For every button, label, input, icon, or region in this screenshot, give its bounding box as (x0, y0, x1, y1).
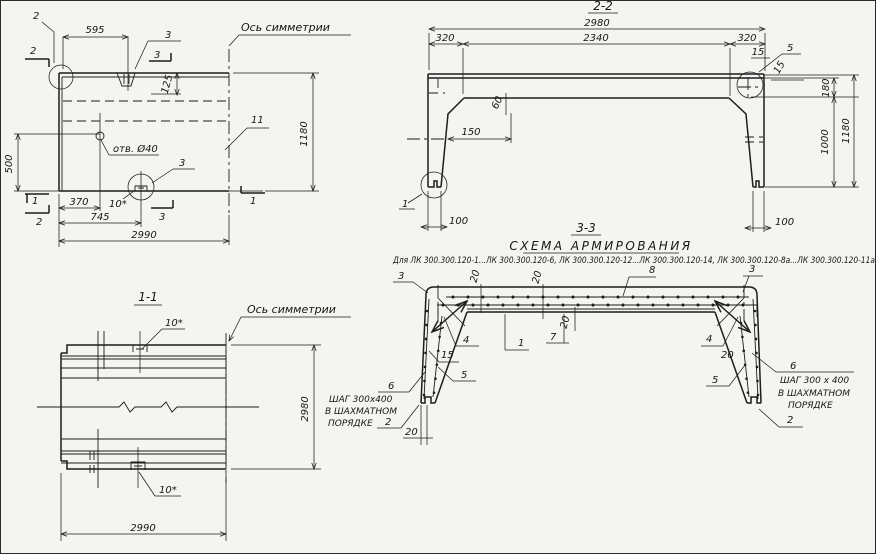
sec33-note-right-3: ПОРЯДКЕ (788, 401, 833, 411)
sec33-texts: 3-3 СХЕМА АРМИРОВАНИЯ Для ЛК 300.300.120… (325, 221, 875, 438)
sec33-pos-4-right: 4 (706, 334, 712, 345)
sec11-pos-10-bottom: 10* (159, 485, 177, 496)
plan-flag-1-left: 1 (32, 196, 38, 207)
sec33-pos-2-right: 2 (787, 415, 793, 426)
plan-label-3-top: 3 (165, 30, 171, 41)
sec22-dim-180: 180 (821, 78, 832, 97)
sec33-dim-20-b: 20 (531, 270, 545, 285)
plan-label-3-bottom: 3 (179, 158, 185, 169)
sec33-dim-20-c: 20 (559, 315, 573, 330)
sec22-dim-1180: 1180 (841, 118, 852, 143)
sec33-note-left-2: В ШАХМАТНОМ (325, 407, 397, 417)
sec33-pos-5-left: 5 (461, 370, 467, 381)
sec33-note-left-3: ПОРЯДКЕ (328, 419, 373, 429)
sec22-dimensions (421, 29, 859, 232)
sec22-dim-2980: 2980 (584, 18, 609, 29)
sec11-axis-label: Ось симметрии (247, 303, 336, 316)
sec33-heading: СХЕМА АРМИРОВАНИЯ (509, 239, 692, 253)
plan-dim-500: 500 (4, 154, 15, 173)
sec22-dim-1000: 1000 (820, 129, 831, 154)
sec33-note-right-2: В ШАХМАТНОМ (778, 389, 850, 399)
sec11-texts: 1-1 10* Ось симметрии 2980 10* 2990 (130, 290, 336, 534)
plan-hole-label: отв. Ø40 (113, 143, 158, 155)
sec11-dimensions (61, 345, 321, 541)
sec22-dim-100-left: 100 (449, 216, 468, 227)
sec33-pos-4-left: 4 (463, 335, 469, 346)
sec11-dim-2980: 2980 (300, 396, 311, 421)
sec22-dim-320-right: 320 (737, 33, 756, 44)
sec33-dim-20-a: 20 (469, 269, 483, 284)
sec33-pos-6-left: 6 (388, 381, 394, 392)
sec33-pos-15: 15 (441, 350, 454, 361)
plan-dim-2990: 2990 (131, 230, 156, 241)
sec22-dim-15-top: 15 (752, 47, 765, 58)
sec33-pos-8: 8 (649, 265, 655, 276)
plan-axis-label: Ось симметрии (241, 21, 330, 34)
drawing-sheet: 2 2 595 3 3 125 Ось симметрии 11 1180 от… (0, 0, 876, 554)
plan-dim-370: 370 (69, 197, 88, 208)
sec33-pos-6-right: 6 (790, 361, 796, 372)
sec11-title: 1-1 (138, 290, 158, 304)
sec33-pos-3-left: 3 (398, 271, 404, 282)
sec11-pos-10-top: 10* (165, 318, 183, 329)
plan-texts: 2 2 595 3 3 125 Ось симметрии 11 1180 от… (4, 11, 330, 241)
plan-dim-745: 745 (90, 212, 109, 223)
plan-label-11: 11 (251, 115, 264, 126)
sec33-pos-2-left: 2 (385, 417, 391, 428)
sec11-outline (37, 331, 259, 488)
technical-drawing: 2 2 595 3 3 125 Ось симметрии 11 1180 от… (1, 1, 876, 554)
sec11-dim-2990: 2990 (130, 523, 155, 534)
sec33-note-left-1: ШАГ 300х400 (329, 395, 393, 405)
plan-dim-595: 595 (85, 25, 104, 36)
plan-flag-1-right: 1 (250, 196, 256, 207)
plan-label-2-top: 2 (33, 11, 39, 22)
sec33-title: 3-3 (576, 221, 596, 235)
plan-flag-2-left: 2 (30, 46, 36, 57)
section-3-3: 3-3 СХЕМА АРМИРОВАНИЯ Для ЛК 300.300.120… (325, 221, 875, 445)
sec33-pos-3-right: 3 (749, 264, 755, 275)
sec33-dim-20-right: 20 (721, 350, 734, 361)
sec22-title: 2-2 (593, 1, 613, 13)
plan-leaders-flags (25, 22, 351, 213)
plan-label-10: 10* (109, 199, 127, 210)
section-2-2: 2-2 2980 2340 320 320 15 15 5 180 1000 1… (399, 1, 859, 232)
section-1-1: 1-1 10* Ось симметрии 2980 10* 2990 (37, 290, 351, 541)
sec33-pos-1: 1 (518, 338, 524, 349)
sec22-dim-2340: 2340 (583, 33, 608, 44)
plan-outline (14, 49, 263, 227)
sec22-texts: 2-2 2980 2340 320 320 15 15 5 180 1000 1… (402, 1, 852, 228)
sec33-subtitle: Для ЛК 300.300.120-1...ЛК 300.300.120-6,… (392, 255, 875, 265)
sec33-pos-5-right: 5 (712, 375, 718, 386)
plan-flag-3-top: 3 (154, 50, 160, 61)
sec33-dim-20-bottom: 20 (405, 427, 418, 438)
sec22-dim-150: 150 (461, 127, 480, 138)
plan-flag-3-bottom: 3 (159, 212, 165, 223)
sec22-dim-320-left: 320 (435, 33, 454, 44)
plan-view: 2 2 595 3 3 125 Ось симметрии 11 1180 от… (4, 11, 351, 247)
sec22-dim-100-right: 100 (775, 217, 794, 228)
plan-dim-1180: 1180 (299, 121, 310, 146)
sec22-detail-5: 5 (787, 43, 793, 54)
sec22-dim-15-corner: 15 (772, 59, 788, 76)
sec33-pos-7: 7 (550, 332, 557, 343)
sec33-note-right-1: ШАГ 300 х 400 (780, 376, 849, 386)
sec22-detail-1: 1 (402, 199, 408, 210)
plan-flag-2-bottom: 2 (36, 217, 42, 228)
